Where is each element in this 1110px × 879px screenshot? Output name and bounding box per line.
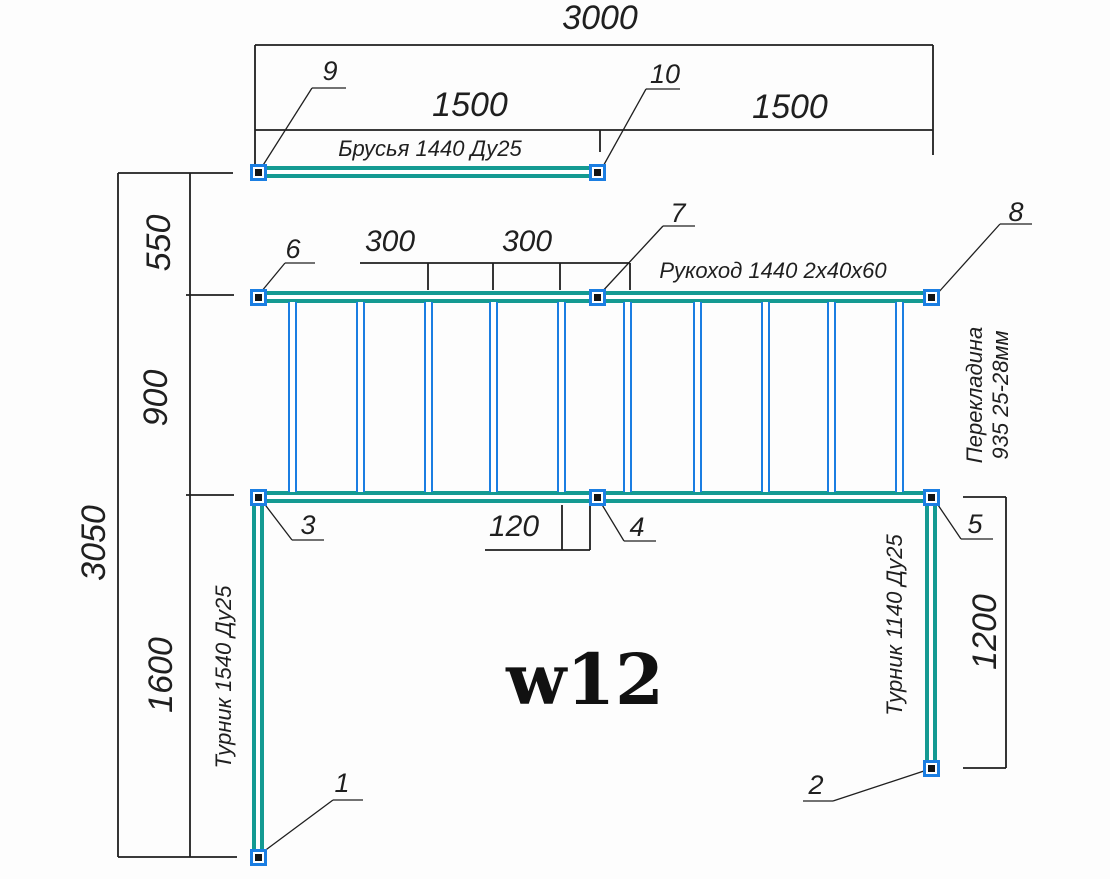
callout-6: 6 xyxy=(278,235,308,263)
brusya-label: Брусья 1440 Ду25 xyxy=(310,136,550,162)
turnik-left-label: Турник 1540 Ду25 xyxy=(210,577,238,777)
callout-9: 9 xyxy=(315,57,345,85)
callout-4: 4 xyxy=(622,513,652,541)
turnik-right-post-pipe xyxy=(925,501,937,767)
node-marker-1 xyxy=(250,849,267,866)
rukohod-rung xyxy=(489,302,498,492)
node-marker-2 xyxy=(923,760,940,777)
dim-total-height: 3050 xyxy=(75,493,115,593)
dim-rukohod-width: 900 xyxy=(137,348,177,448)
dim-brusya-to-rukohod: 550 xyxy=(140,193,180,293)
turnik-left-post-pipe xyxy=(252,501,264,856)
node-marker-4 xyxy=(589,489,606,506)
dim-right-post-length: 1200 xyxy=(966,562,1006,702)
rukohod-rung xyxy=(288,302,297,492)
dim-total-width: 3000 xyxy=(525,1,675,37)
rukohod-rung xyxy=(623,302,632,492)
node-marker-9 xyxy=(250,164,267,181)
dim-end-offset: 120 xyxy=(474,512,554,542)
rukohod-rung xyxy=(356,302,365,492)
callout-1: 1 xyxy=(327,769,357,797)
node-marker-6 xyxy=(250,289,267,306)
callout-8: 8 xyxy=(1001,198,1031,226)
leader-lines xyxy=(260,88,1032,852)
dim-rung-spacing-a: 300 xyxy=(350,227,430,257)
callout-10: 10 xyxy=(647,60,683,88)
node-marker-8 xyxy=(923,289,940,306)
brusya-bar-pipe xyxy=(252,166,606,178)
node-marker-7 xyxy=(589,289,606,306)
dim-left-half-width: 1500 xyxy=(400,89,540,123)
dim-right-half-width: 1500 xyxy=(720,91,860,125)
callout-2: 2 xyxy=(801,771,831,799)
node-marker-10 xyxy=(589,164,606,181)
turnik-right-label: Турник 1140 Ду25 xyxy=(881,525,909,725)
dim-left-post-below: 1600 xyxy=(142,625,182,725)
perekladina-label: Перекладина 935 25-28мм xyxy=(961,295,1015,495)
rukohod-rung xyxy=(827,302,836,492)
perekladina-label-line1: Перекладина xyxy=(962,327,988,463)
node-marker-5 xyxy=(923,489,940,506)
callout-7: 7 xyxy=(663,199,693,227)
drawing-title: w12 xyxy=(485,639,685,719)
technical-drawing-canvas: 3000 1500 1500 300 300 120 550 900 3050 … xyxy=(0,0,1110,879)
rukohod-rung xyxy=(557,302,566,492)
callout-5: 5 xyxy=(960,510,990,538)
rukohod-rung xyxy=(693,302,702,492)
node-marker-3 xyxy=(250,489,267,506)
callout-3: 3 xyxy=(293,511,323,539)
rukohod-rung xyxy=(895,302,904,492)
rukohod-rung xyxy=(761,302,770,492)
rukohod-rung xyxy=(424,302,433,492)
perekladina-label-line2: 935 25-28мм xyxy=(988,330,1014,459)
rukohod-label: Рукоход 1440 2х40х60 xyxy=(638,258,908,284)
dim-rung-spacing-b: 300 xyxy=(487,227,567,257)
